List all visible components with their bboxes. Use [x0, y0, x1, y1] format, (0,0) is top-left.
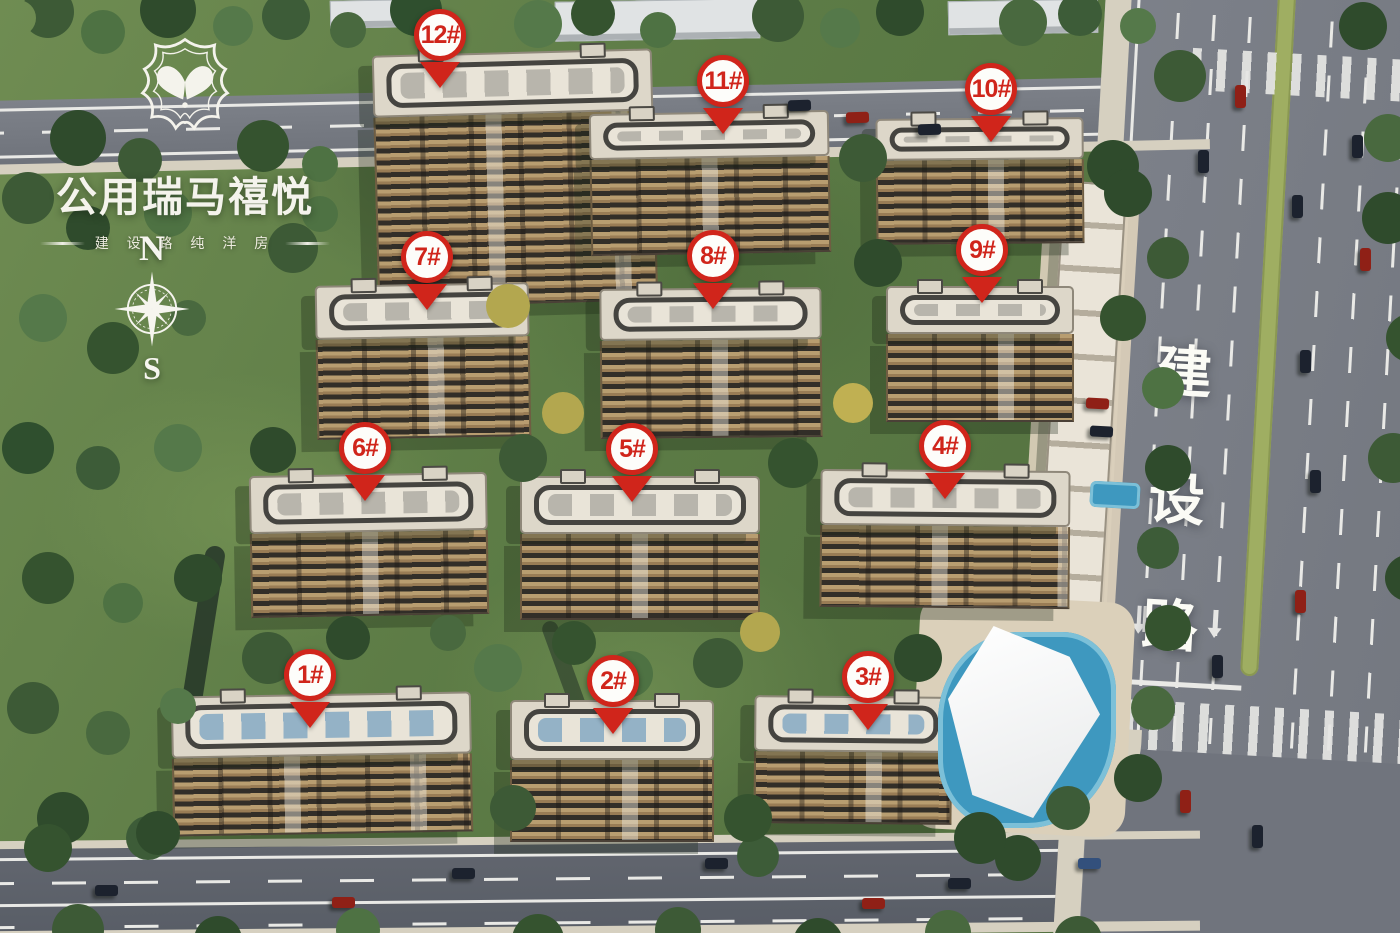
- brand-title: 公用瑞马禧悦: [40, 163, 330, 223]
- car: [1235, 85, 1246, 108]
- south-road: [0, 838, 1200, 933]
- roof-bulkhead: [763, 104, 789, 119]
- building-facade: [510, 760, 714, 842]
- marker-arrow-icon: [345, 475, 385, 501]
- car: [788, 100, 811, 112]
- building-facade: [886, 334, 1074, 422]
- compass: N S: [112, 230, 192, 384]
- building-facade: [172, 753, 473, 836]
- offsite-building: [948, 0, 1099, 35]
- car: [332, 897, 355, 908]
- compass-south-label: S: [112, 352, 192, 384]
- marker-label: 4#: [932, 432, 958, 461]
- roof-bulkhead: [1023, 110, 1049, 125]
- car: [1310, 470, 1321, 493]
- building-marker-6[interactable]: 6#: [332, 422, 398, 501]
- marker-circle: 5#: [606, 423, 658, 475]
- small-pool: [1089, 481, 1140, 510]
- roof-bulkhead: [350, 278, 376, 293]
- marker-circle: 7#: [401, 231, 453, 283]
- roof-bulkhead: [862, 462, 888, 477]
- brand-emblem-icon: [115, 34, 255, 154]
- car: [1360, 248, 1371, 271]
- car: [452, 868, 475, 879]
- tagline-dash: [285, 242, 330, 245]
- roof-bulkhead: [788, 688, 814, 703]
- roof-bulkhead: [1017, 279, 1043, 294]
- car: [1292, 195, 1303, 218]
- building-marker-12[interactable]: 12#: [407, 9, 473, 88]
- building-facade: [753, 751, 952, 825]
- roof-bulkhead: [654, 693, 680, 708]
- building-facade: [250, 530, 489, 618]
- road-median: [1240, 0, 1298, 676]
- tree-belt-right: [0, 0, 36, 36]
- marker-arrow-icon: [407, 284, 447, 310]
- car: [862, 898, 885, 909]
- building-marker-8[interactable]: 8#: [680, 230, 746, 309]
- brand-logo: 公用瑞马禧悦 建 设 路 纯 洋 房: [40, 34, 330, 253]
- car: [1090, 425, 1114, 437]
- marker-label: 12#: [421, 21, 460, 50]
- building-marker-11[interactable]: 11#: [690, 55, 756, 134]
- marker-arrow-icon: [593, 708, 633, 734]
- compass-rose-icon: [113, 270, 191, 348]
- compass-north-label: N: [112, 230, 192, 266]
- roof-bulkhead: [694, 469, 720, 484]
- building-facade: [819, 525, 1070, 609]
- roof-bulkhead: [288, 468, 314, 483]
- road-name-char: 建: [1154, 326, 1214, 410]
- roof-bulkhead: [560, 469, 586, 484]
- marker-arrow-icon: [703, 108, 743, 134]
- road-name-char: 设: [1147, 453, 1207, 537]
- car: [948, 878, 971, 889]
- roof-bulkhead: [579, 43, 605, 59]
- marker-circle: 9#: [956, 224, 1008, 276]
- building-marker-2[interactable]: 2#: [580, 655, 646, 734]
- marker-circle: 4#: [919, 420, 971, 472]
- car: [95, 885, 118, 896]
- roof-bulkhead: [636, 281, 662, 296]
- marker-arrow-icon: [925, 473, 965, 499]
- marker-circle: 12#: [414, 9, 466, 61]
- building-9: [886, 286, 1074, 422]
- marker-arrow-icon: [612, 476, 652, 502]
- car: [846, 112, 869, 124]
- building-8: [599, 287, 822, 439]
- marker-label: 2#: [600, 667, 626, 696]
- car: [1252, 825, 1263, 848]
- marker-circle: 1#: [284, 649, 336, 701]
- tagline-dash: [40, 242, 85, 245]
- marker-label: 5#: [619, 435, 645, 464]
- marker-circle: 2#: [587, 655, 639, 707]
- marker-arrow-icon: [693, 283, 733, 309]
- car: [1198, 150, 1209, 173]
- marker-circle: 8#: [687, 230, 739, 282]
- roof-bulkhead: [758, 280, 784, 295]
- marker-arrow-icon: [962, 277, 1002, 303]
- roof-bulkhead: [628, 106, 654, 121]
- roof-bulkhead: [917, 279, 943, 294]
- marker-arrow-icon: [290, 702, 330, 728]
- building-facade: [520, 534, 760, 620]
- site-plan-rendering: 建 设 路: [0, 0, 1400, 933]
- roof-bulkhead: [395, 685, 421, 700]
- marker-circle: 6#: [339, 422, 391, 474]
- marker-arrow-icon: [848, 704, 888, 730]
- roof-bulkhead: [1003, 464, 1029, 479]
- marker-label: 10#: [972, 75, 1011, 104]
- marker-label: 9#: [969, 236, 995, 265]
- roof-bulkhead: [467, 276, 493, 291]
- road-lane-dash: [0, 872, 1200, 886]
- marker-arrow-icon: [420, 62, 460, 88]
- marker-circle: 3#: [842, 651, 894, 703]
- marker-label: 7#: [414, 243, 440, 272]
- building-marker-7[interactable]: 7#: [394, 231, 460, 310]
- building-marker-10[interactable]: 10#: [958, 63, 1024, 142]
- roof-bulkhead: [544, 693, 570, 708]
- marker-label: 11#: [704, 67, 741, 96]
- building-marker-5[interactable]: 5#: [599, 423, 665, 502]
- roof-bulkhead: [421, 466, 447, 481]
- building-marker-4[interactable]: 4#: [912, 420, 978, 499]
- offsite-building: [555, 0, 761, 42]
- marker-label: 8#: [700, 242, 726, 271]
- road-edge-line: [0, 848, 1200, 862]
- car: [918, 124, 941, 136]
- car: [1086, 397, 1110, 409]
- car: [1295, 590, 1306, 613]
- building-marker-1[interactable]: 1#: [277, 649, 343, 728]
- marker-label: 1#: [297, 661, 323, 690]
- car: [1300, 350, 1311, 373]
- car: [1212, 655, 1223, 678]
- car: [705, 858, 728, 869]
- marker-circle: 11#: [697, 55, 749, 107]
- offsite-building: [330, 0, 410, 29]
- car: [1078, 858, 1101, 869]
- marker-label: 3#: [855, 663, 881, 692]
- building-marker-3[interactable]: 3#: [835, 651, 901, 730]
- marker-label: 6#: [352, 434, 378, 463]
- marker-circle: 10#: [965, 63, 1017, 115]
- roof-bulkhead: [220, 688, 246, 703]
- marker-arrow-icon: [971, 116, 1011, 142]
- car: [1352, 135, 1363, 158]
- car: [1180, 790, 1191, 813]
- road-name-char: 路: [1140, 580, 1200, 664]
- road-center-line: [0, 894, 1200, 908]
- building-marker-9[interactable]: 9#: [949, 224, 1015, 303]
